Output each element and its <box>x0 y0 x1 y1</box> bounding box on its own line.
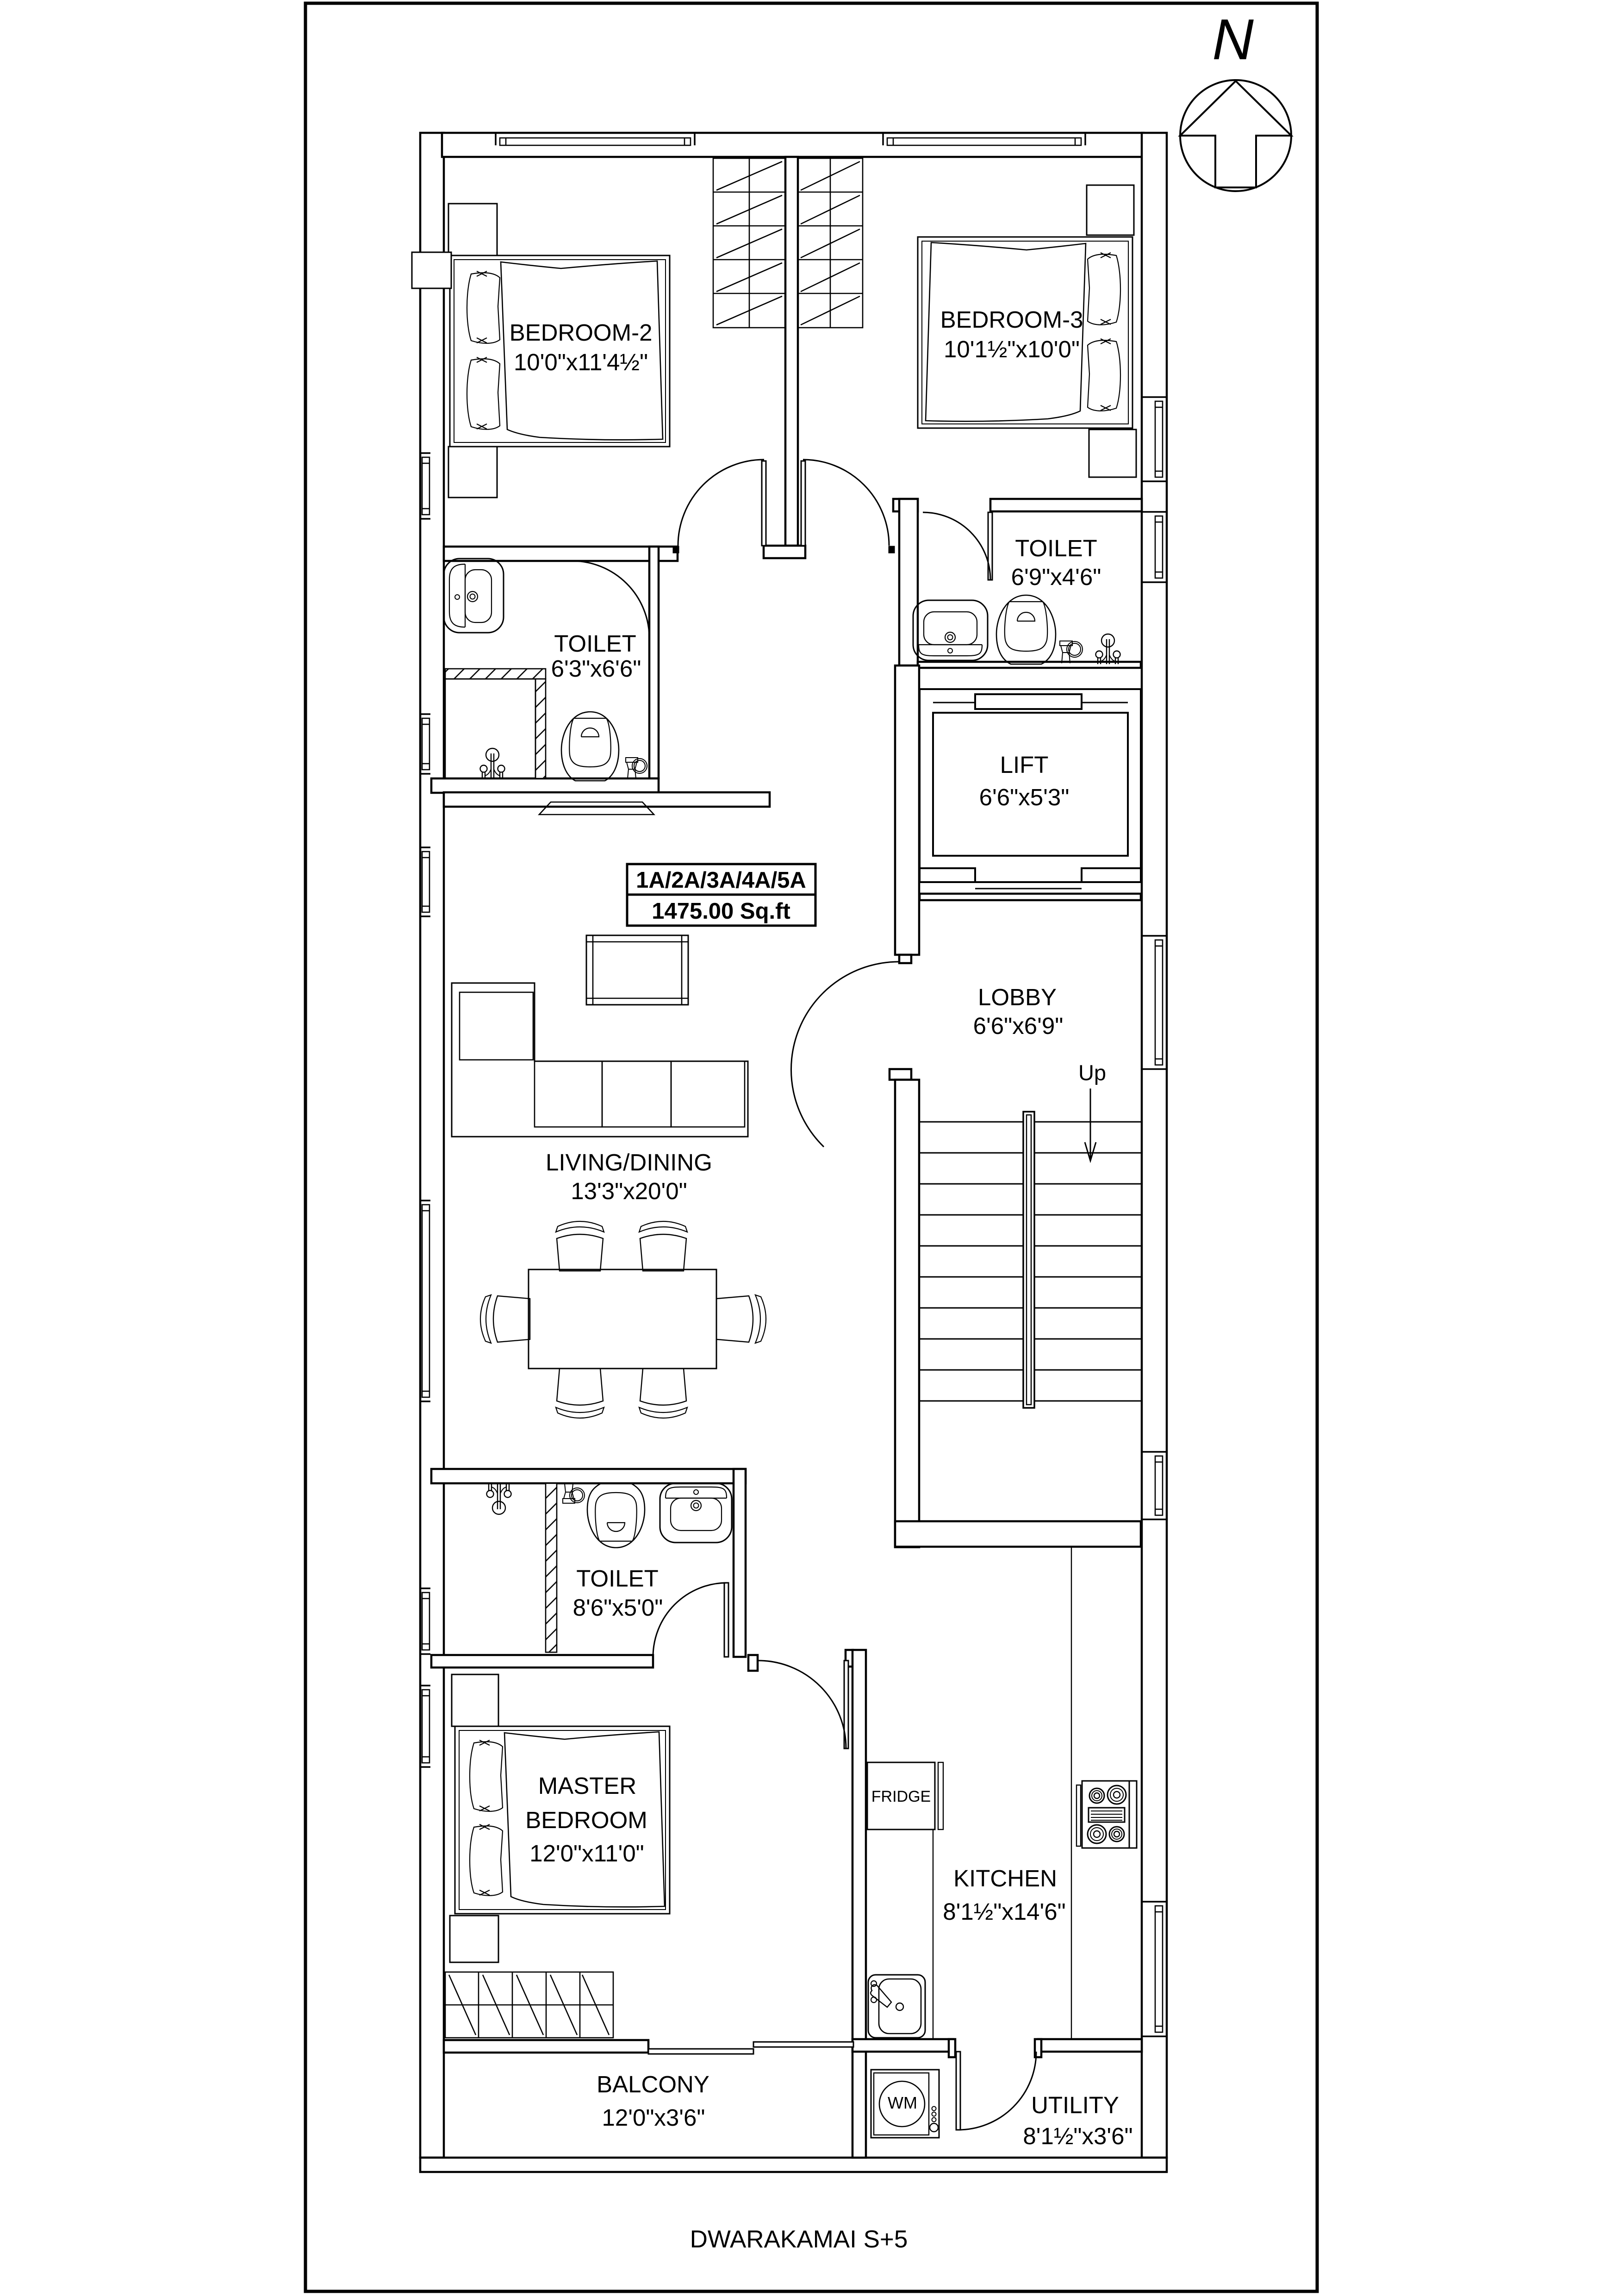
svg-text:TOILET: TOILET <box>1015 535 1097 561</box>
svg-text:6'6"x6'9": 6'6"x6'9" <box>973 1013 1064 1039</box>
svg-text:8'6"x5'0": 8'6"x5'0" <box>573 1594 663 1621</box>
svg-text:MASTER: MASTER <box>538 1773 637 1799</box>
svg-text:8'1½"x14'6": 8'1½"x14'6" <box>943 1898 1066 1925</box>
svg-text:Up: Up <box>1078 1060 1106 1085</box>
svg-text:8'1½"x3'6": 8'1½"x3'6" <box>1023 2123 1132 2149</box>
svg-text:LIVING/DINING: LIVING/DINING <box>546 1149 712 1176</box>
svg-text:BEDROOM-2: BEDROOM-2 <box>510 319 653 346</box>
svg-text:13'3"x20'0": 13'3"x20'0" <box>571 1178 687 1204</box>
svg-text:12'0"x11'0": 12'0"x11'0" <box>529 1840 644 1867</box>
svg-text:10'0"x11'4½": 10'0"x11'4½" <box>514 349 648 375</box>
svg-text:WM: WM <box>888 2093 917 2112</box>
svg-text:BEDROOM: BEDROOM <box>525 1807 647 1833</box>
svg-text:BALCONY: BALCONY <box>597 2071 709 2097</box>
svg-text:6'6"x5'3": 6'6"x5'3" <box>979 784 1070 810</box>
svg-text:LOBBY: LOBBY <box>978 984 1057 1010</box>
svg-text:10'1½"x10'0": 10'1½"x10'0" <box>944 336 1080 362</box>
svg-text:TOILET: TOILET <box>554 630 636 657</box>
svg-text:N: N <box>1212 8 1254 72</box>
svg-text:6'3"x6'6": 6'3"x6'6" <box>551 655 641 682</box>
svg-text:12'0"x3'6": 12'0"x3'6" <box>602 2104 705 2131</box>
svg-text:1475.00 Sq.ft: 1475.00 Sq.ft <box>652 899 790 924</box>
svg-text:TOILET: TOILET <box>576 1565 659 1592</box>
svg-text:DWARAKAMAI S+5: DWARAKAMAI S+5 <box>690 2226 908 2253</box>
svg-text:LIFT: LIFT <box>1000 752 1049 778</box>
svg-text:1A/2A/3A/4A/5A: 1A/2A/3A/4A/5A <box>636 868 806 893</box>
svg-text:UTILITY: UTILITY <box>1031 2092 1119 2118</box>
svg-text:KITCHEN: KITCHEN <box>953 1865 1057 1892</box>
svg-text:6'9"x4'6": 6'9"x4'6" <box>1011 564 1101 590</box>
svg-text:FRIDGE: FRIDGE <box>871 1788 931 1805</box>
svg-text:BEDROOM-3: BEDROOM-3 <box>940 306 1083 333</box>
